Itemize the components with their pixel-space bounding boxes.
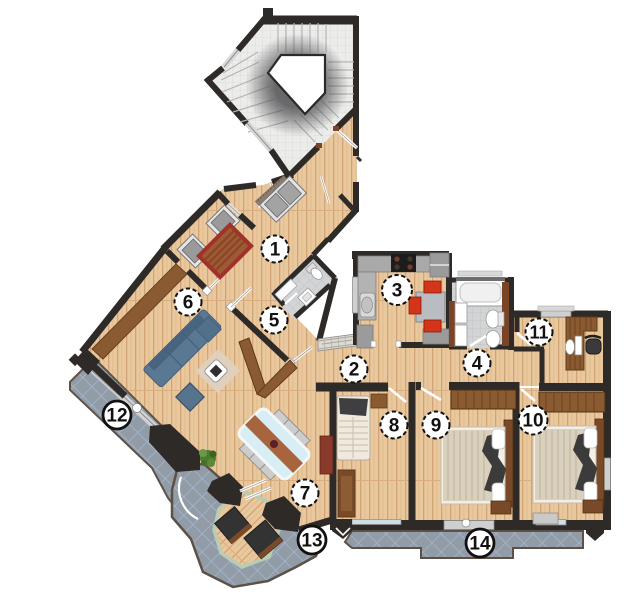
svg-text:13: 13 <box>301 531 322 552</box>
svg-text:6: 6 <box>183 293 194 314</box>
svg-text:4: 4 <box>472 354 483 375</box>
svg-text:3: 3 <box>392 281 403 302</box>
svg-text:1: 1 <box>270 240 281 261</box>
svg-text:9: 9 <box>431 416 442 437</box>
svg-text:5: 5 <box>269 311 280 332</box>
svg-text:2: 2 <box>349 360 360 381</box>
svg-text:11: 11 <box>529 323 548 343</box>
svg-text:8: 8 <box>389 416 400 437</box>
svg-text:14: 14 <box>469 534 491 555</box>
svg-text:7: 7 <box>300 484 311 505</box>
svg-text:12: 12 <box>106 406 127 427</box>
svg-text:10: 10 <box>522 411 543 432</box>
